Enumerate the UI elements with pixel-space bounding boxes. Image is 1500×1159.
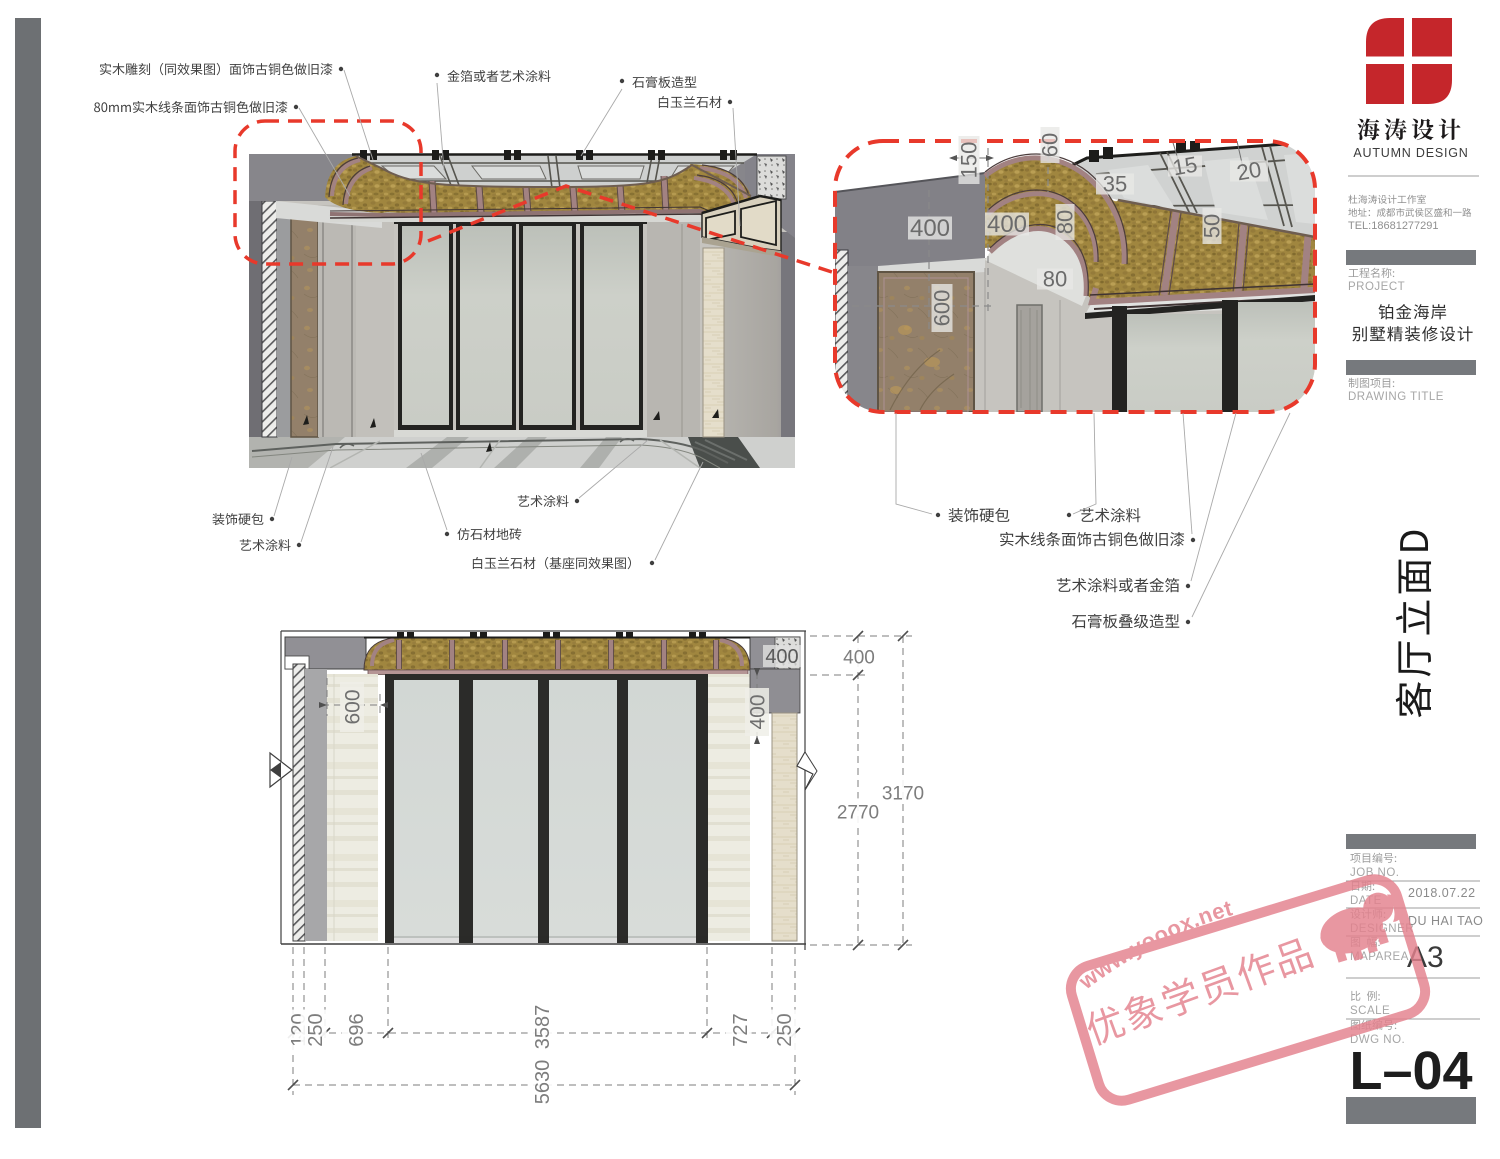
svg-text:SCALE: SCALE bbox=[1350, 1005, 1390, 1017]
svg-text:80: 80 bbox=[1052, 210, 1077, 234]
svg-text:5630: 5630 bbox=[532, 1060, 554, 1105]
svg-text:400: 400 bbox=[843, 648, 875, 669]
svg-text:250: 250 bbox=[774, 1013, 796, 1046]
svg-text:15: 15 bbox=[1171, 152, 1199, 181]
svg-text:DU HAI TAO: DU HAI TAO bbox=[1408, 914, 1483, 928]
svg-text:AUTUMN DESIGN: AUTUMN DESIGN bbox=[1353, 146, 1468, 160]
svg-text:400: 400 bbox=[765, 646, 798, 668]
svg-text:PROJECT: PROJECT bbox=[1348, 281, 1405, 293]
svg-text:250: 250 bbox=[305, 1013, 327, 1046]
svg-text:600: 600 bbox=[341, 689, 364, 724]
svg-text:400: 400 bbox=[987, 211, 1027, 238]
svg-text:3170: 3170 bbox=[882, 784, 924, 805]
svg-text:DRAWING TITLE: DRAWING TITLE bbox=[1348, 391, 1444, 403]
svg-text:727: 727 bbox=[730, 1013, 752, 1046]
svg-text:3587: 3587 bbox=[532, 1005, 554, 1050]
svg-text:400: 400 bbox=[746, 694, 769, 729]
svg-text:35: 35 bbox=[1103, 171, 1127, 196]
svg-text:400: 400 bbox=[910, 215, 950, 242]
svg-text:2018.07.22: 2018.07.22 bbox=[1408, 886, 1476, 900]
svg-text:60: 60 bbox=[1037, 133, 1062, 157]
svg-text:20: 20 bbox=[1235, 157, 1263, 186]
svg-text:600: 600 bbox=[929, 290, 954, 327]
svg-text:150: 150 bbox=[956, 142, 981, 179]
svg-text:TEL:18681277291: TEL:18681277291 bbox=[1348, 220, 1439, 232]
svg-text:2770: 2770 bbox=[837, 803, 879, 824]
svg-text:50: 50 bbox=[1199, 214, 1224, 238]
svg-text:80: 80 bbox=[1043, 266, 1067, 291]
svg-text:L–04: L–04 bbox=[1349, 1041, 1472, 1101]
svg-text:696: 696 bbox=[346, 1013, 368, 1046]
